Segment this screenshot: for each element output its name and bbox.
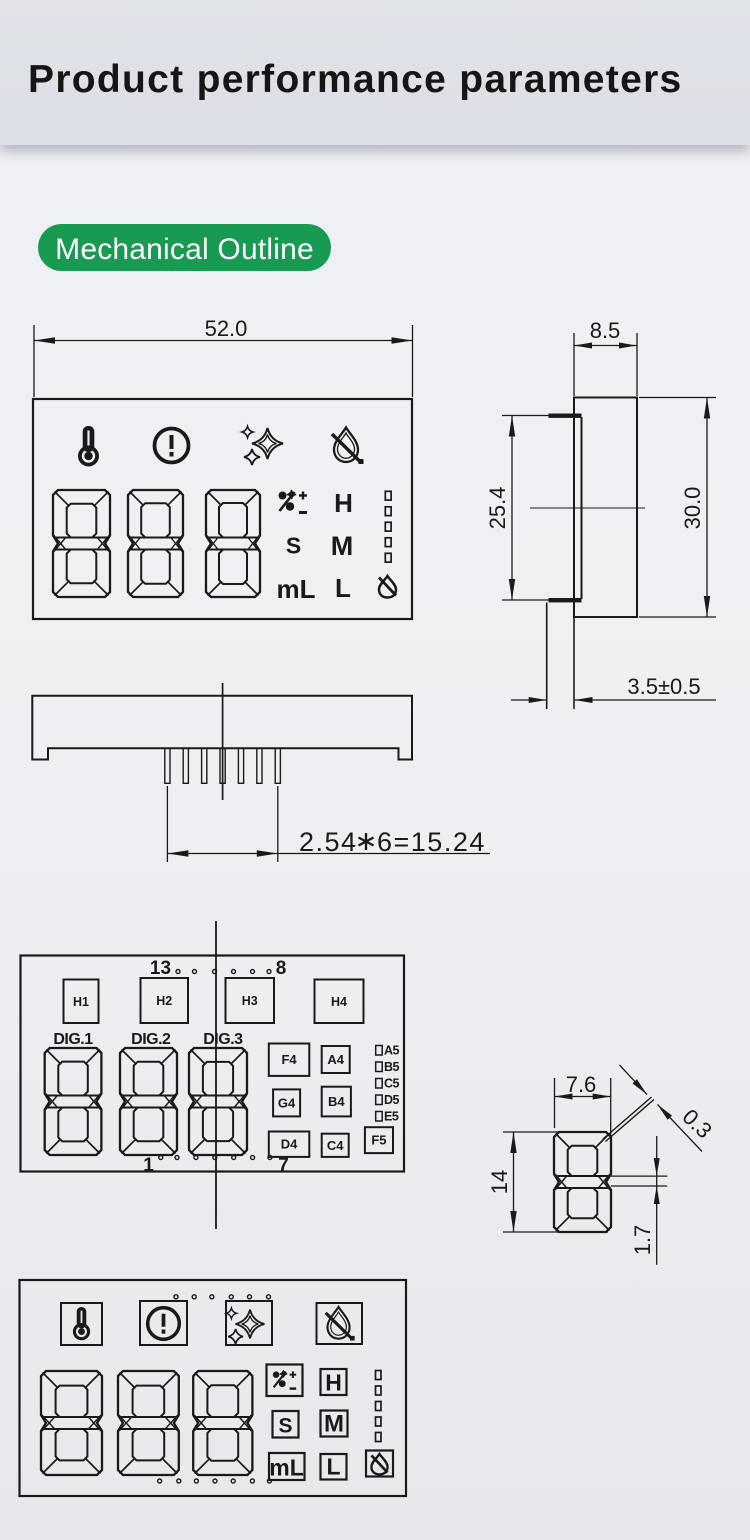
svg-text:F5: F5 — [371, 1133, 386, 1148]
svg-text:H: H — [325, 1370, 342, 1396]
svg-text:3.5±0.5: 3.5±0.5 — [627, 674, 700, 699]
svg-text:DIG.2: DIG.2 — [131, 1031, 171, 1048]
svg-text:2.54: 2.54 — [299, 827, 358, 857]
svg-text:A5: A5 — [384, 1044, 400, 1058]
svg-text:H2: H2 — [156, 994, 172, 1008]
svg-text:H: H — [334, 488, 353, 518]
svg-text:G4: G4 — [278, 1095, 296, 1110]
svg-text:D5: D5 — [384, 1093, 400, 1107]
svg-text:mL: mL — [277, 574, 316, 604]
svg-text:C4: C4 — [327, 1138, 344, 1153]
svg-text:14: 14 — [487, 1170, 512, 1194]
svg-text:S: S — [286, 533, 301, 559]
svg-text:E5: E5 — [384, 1110, 399, 1124]
svg-text:7.6: 7.6 — [566, 1072, 597, 1097]
svg-text:8.5: 8.5 — [590, 318, 621, 343]
svg-text:S: S — [278, 1415, 292, 1438]
svg-text:13: 13 — [150, 958, 171, 979]
svg-text:M: M — [331, 531, 354, 561]
svg-text:L: L — [326, 1454, 340, 1480]
svg-text:H3: H3 — [242, 994, 258, 1008]
svg-text:0.3: 0.3 — [678, 1104, 717, 1143]
svg-text:7: 7 — [278, 1155, 289, 1176]
svg-text:DIG.1: DIG.1 — [53, 1031, 93, 1048]
svg-text:1: 1 — [143, 1155, 154, 1176]
svg-text:30.0: 30.0 — [680, 487, 705, 530]
svg-text:L: L — [335, 573, 351, 603]
svg-text:M: M — [324, 1411, 344, 1438]
svg-text:H4: H4 — [331, 995, 347, 1009]
svg-text:H1: H1 — [73, 995, 89, 1009]
svg-text:C5: C5 — [384, 1077, 400, 1091]
svg-text:25.4: 25.4 — [485, 487, 510, 530]
svg-text:1.7: 1.7 — [630, 1225, 655, 1256]
svg-text:B5: B5 — [384, 1060, 400, 1074]
svg-text:52.0: 52.0 — [205, 316, 248, 341]
svg-text:B4: B4 — [328, 1094, 345, 1109]
svg-text:DIG.3: DIG.3 — [203, 1031, 243, 1048]
svg-text:8: 8 — [276, 958, 287, 979]
svg-text:D4: D4 — [281, 1137, 298, 1152]
svg-text:F4: F4 — [281, 1052, 297, 1067]
svg-text:A4: A4 — [327, 1052, 344, 1067]
svg-text:mL: mL — [269, 1455, 304, 1481]
svg-text:6=15.24: 6=15.24 — [377, 827, 486, 857]
